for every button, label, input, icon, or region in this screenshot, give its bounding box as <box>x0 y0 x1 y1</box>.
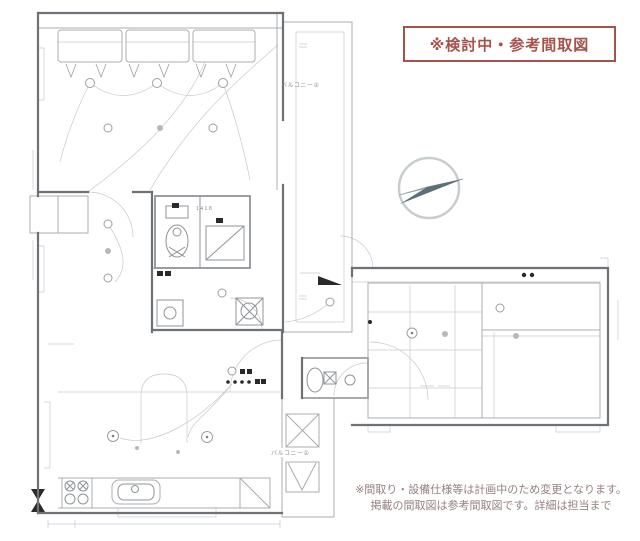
plan-fixtures <box>65 196 368 504</box>
construction-notice-label: ※検討中・参考間取図 <box>430 34 590 55</box>
construction-notice-box: ※検討中・参考間取図 <box>403 26 616 62</box>
floorplan-page: ※検討中・参考間取図 バルコニー② バルコニー① 1418 ※間取り・設備仕様等… <box>0 0 640 541</box>
closet-hanger-symbols <box>66 64 236 77</box>
bath-dimension-label: 1418 <box>196 206 213 212</box>
disclaimer-line-2: 掲載の間取図は参考間取図です。詳細は担当まで <box>344 498 638 514</box>
disclaimer-line-1: ※間取り・設備仕様等は計画中のため変更となります。 <box>344 482 638 498</box>
balcony-upper-label: バルコニー② <box>281 80 319 89</box>
floorplan-drawing <box>0 0 640 541</box>
disclaimer-text: ※間取り・設備仕様等は計画中のため変更となります。 掲載の間取図は参考間取図です… <box>344 482 638 514</box>
balcony-lower-label: バルコニー① <box>270 448 310 457</box>
plan-walls <box>38 13 608 513</box>
north-arrow-icon <box>399 158 463 218</box>
